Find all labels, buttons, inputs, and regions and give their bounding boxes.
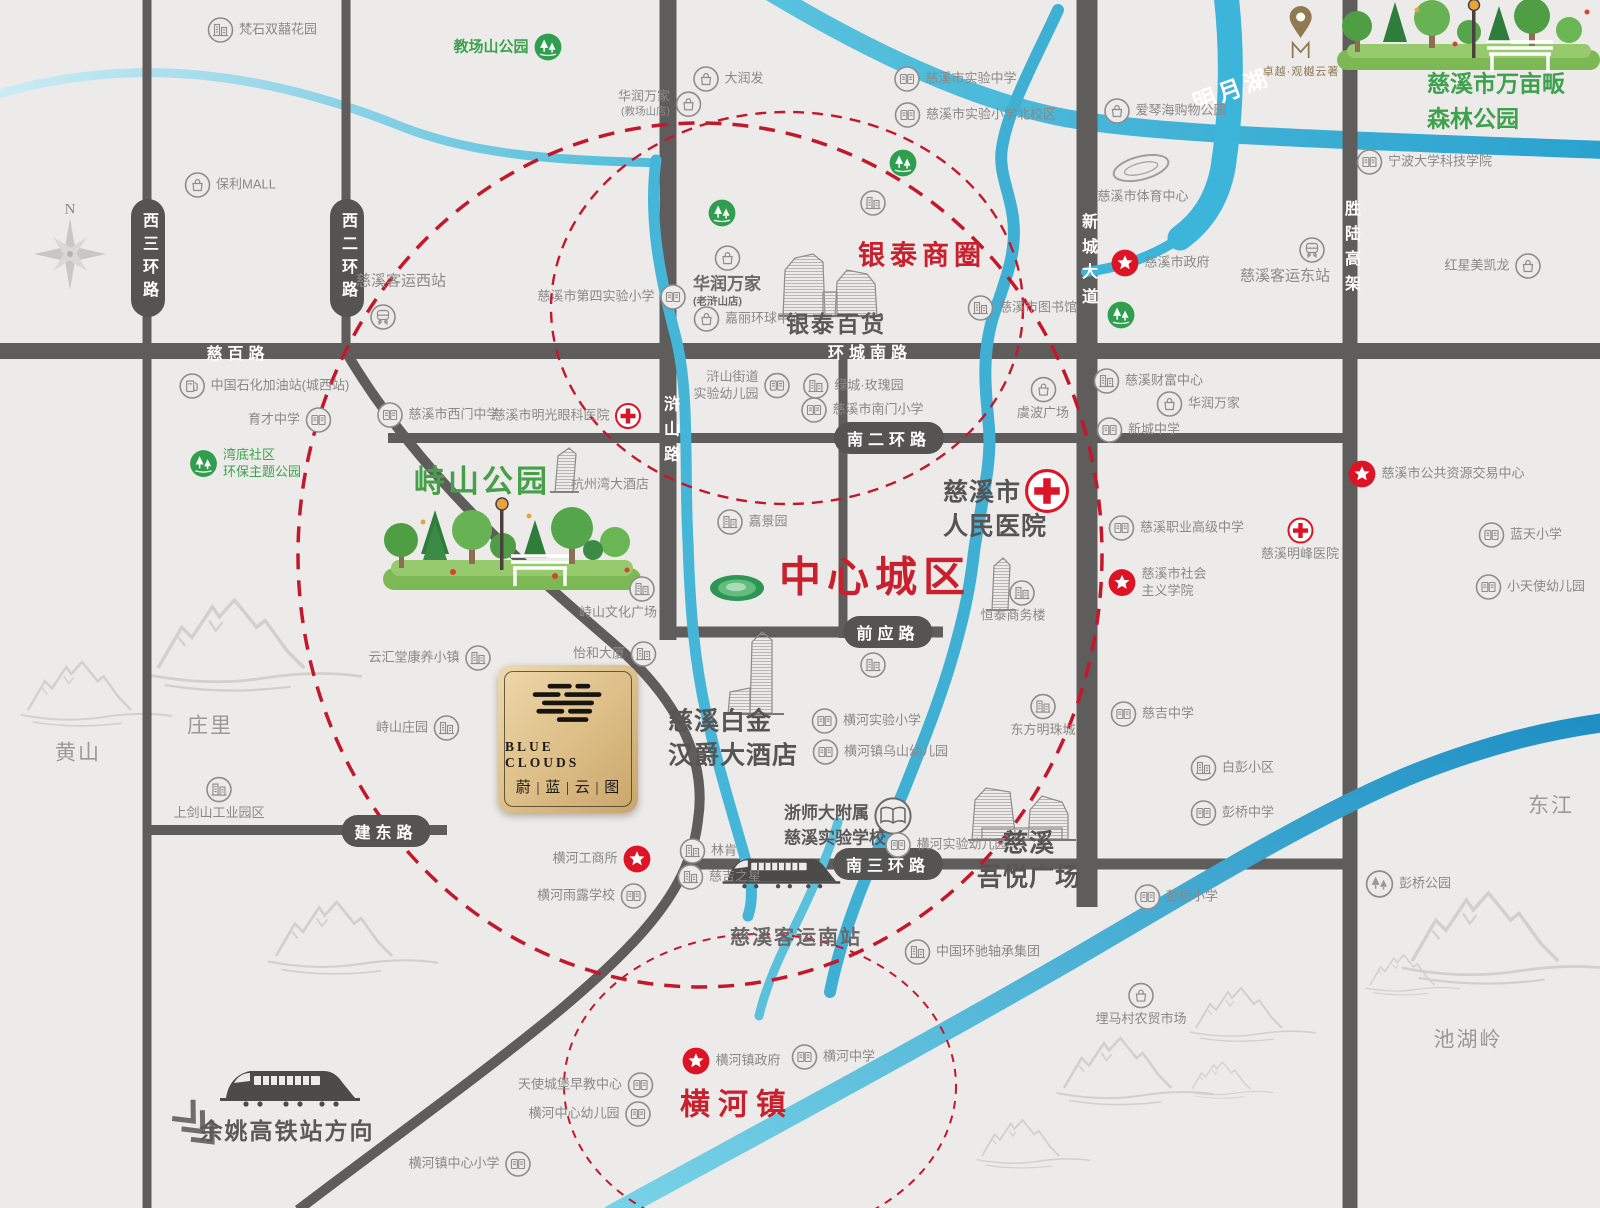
henghe-yulu-xuexiao: 横河雨露学校 xyxy=(537,883,647,910)
yuyao-gaotiezhan-fangxiang: 余姚高铁站方向 xyxy=(200,1117,375,1147)
building-icon xyxy=(1009,580,1036,607)
hongxing-meikailong: 红星美凯龙 xyxy=(1444,253,1541,280)
school-icon xyxy=(894,102,921,129)
train-icon xyxy=(1299,237,1326,264)
school-icon xyxy=(1356,149,1383,176)
henghe-zhongxue: 横河中学 xyxy=(791,1044,875,1071)
cross-lg-icon xyxy=(1024,468,1070,514)
location-map: BLUE CLOUDS 蔚 | 蓝 | 云 | 图 卓越·观樾云著 西三环路西二… xyxy=(0,0,1600,1208)
yintai-baihuo: 银泰百货 xyxy=(786,310,886,340)
cixi-keyun-dongzhan: 慈溪客运东站 xyxy=(1240,266,1330,286)
yihe-dasha: 怡和大厦 xyxy=(573,641,657,668)
school-icon xyxy=(1190,800,1217,827)
naner-huanlu-label: 南二环路 xyxy=(834,422,944,454)
xincheng-zhongxue: 新城中学 xyxy=(1096,417,1180,444)
hengtai-icon xyxy=(1009,580,1036,607)
school-icon xyxy=(1110,701,1137,728)
jiandong-lu-label: 建东路 xyxy=(341,815,430,847)
cixi-gonggong-ziyuan-jiaoyi-zhongxin: 慈溪市公共资源交易中心 xyxy=(1347,460,1524,489)
school-icon xyxy=(764,373,791,400)
school-icon xyxy=(505,1151,532,1178)
shenglu-gaojia-label: 胜陆高架 xyxy=(1338,200,1362,300)
school-icon xyxy=(811,708,838,735)
developer-project-name: 卓越·观樾云著 xyxy=(1263,63,1340,79)
cixi-shiyan-zhongxue: 慈溪市实验中学 xyxy=(893,66,1016,93)
developer-pin-block: 卓越·观樾云著 xyxy=(1263,6,1340,79)
dongzhan-train xyxy=(1299,237,1326,264)
dongjiang: 东江 xyxy=(1528,792,1574,819)
zhongguo-shihua-jiayouzhan: 中国石化加油站(城西站) xyxy=(179,373,350,400)
jiajingyuan: 嘉景园 xyxy=(716,509,787,536)
xincheng-dadao-label: 新城大道 xyxy=(1075,213,1099,313)
lvcheng-meiguiyuan: 绿城·玫瑰园 xyxy=(802,373,903,400)
baoli-mall: 保利MALL xyxy=(184,172,276,199)
cixi-keyun-nanzhan: 慈溪客运南站 xyxy=(730,925,862,951)
location-pin-icon xyxy=(1288,6,1314,40)
dongfang-mingzhucheng: 东方明珠城 xyxy=(1010,693,1075,739)
project-logo-inner: BLUE CLOUDS 蔚 | 蓝 | 云 | 图 xyxy=(504,671,632,807)
yucai-zhongxue: 育才中学 xyxy=(248,407,332,434)
bag-icon xyxy=(1156,391,1183,418)
project-logo-plaque: BLUE CLOUDS 蔚 | 蓝 | 云 | 图 xyxy=(498,665,638,813)
clouds-icon xyxy=(520,682,616,734)
henghezhen: 横河镇 xyxy=(680,1086,794,1125)
zheshida-fushu-cixi-shiyan-xuexiao: 浙师大附属慈溪实验学校 xyxy=(784,801,886,850)
school-icon xyxy=(620,883,647,910)
darunfa: 大润发 xyxy=(692,66,763,93)
bag-icon xyxy=(1127,982,1154,1009)
school-icon xyxy=(305,407,332,434)
huancheng-nanlu-label: 环城南路 xyxy=(828,339,912,363)
school-icon xyxy=(1134,884,1161,911)
park-icon xyxy=(534,33,563,62)
cixi-nanmen-xiaoxue: 慈溪市南门小学 xyxy=(800,397,923,424)
building-icon xyxy=(716,509,743,536)
cixi-zhengfu: 慈溪市政府 xyxy=(1110,249,1209,278)
school-icon xyxy=(1108,515,1135,542)
park-icon-2 xyxy=(708,199,737,228)
zhuangli: 庄里 xyxy=(187,712,233,739)
henghezhen-zhongxin-xiaoxue: 横河镇中心小学 xyxy=(408,1151,531,1178)
xiaotianshi-youeryuan: 小天使幼儿园 xyxy=(1475,574,1585,601)
star-icon xyxy=(681,1047,710,1076)
cross-icon xyxy=(615,403,642,430)
star-icon xyxy=(1107,569,1136,598)
ningbo-daxue-keji-xueyuan: 宁波大学科技学院 xyxy=(1356,149,1492,176)
cixi-zhiye-gaoji-zhongxue: 慈溪职业高级中学 xyxy=(1108,515,1244,542)
building-icon xyxy=(860,190,887,217)
cixi-baijin-hanjue-dajiudian: 慈溪白金汉爵大酒店 xyxy=(668,705,798,773)
cixi-mingfeng-yiyuan: 慈溪明峰医院 xyxy=(1261,517,1339,563)
building-icon xyxy=(802,373,829,400)
school-icon xyxy=(893,66,920,93)
huarun-wanjia: 华润万家 xyxy=(1156,391,1240,418)
star-icon xyxy=(623,845,652,874)
ciji-zhixing: 慈吉之星 xyxy=(677,864,761,891)
shangjianshan-gongye-yuanqu: 上剑山工业园区 xyxy=(173,776,264,822)
building-icon xyxy=(677,864,704,891)
fanshi-shuangxi-huayuan: 梵石双囍花园 xyxy=(207,17,317,44)
project-name-en: BLUE CLOUDS xyxy=(505,739,631,771)
train-icon xyxy=(370,304,397,331)
star-icon xyxy=(1347,460,1376,489)
bag-icon xyxy=(675,91,702,118)
cixi-wuyue-guangchang: 慈溪吾悦广场 xyxy=(977,827,1081,895)
hangzhouwan-dajiudian: 杭州湾大酒店 xyxy=(571,477,649,494)
bag-icon xyxy=(1515,253,1542,280)
zhishan-wenhua-guangchang-icon xyxy=(629,576,656,603)
henghezhen-zhengfu: 横河镇政府 xyxy=(681,1047,780,1076)
cixi-keyun-xizhan: 慈溪客运西站 xyxy=(356,271,446,291)
henghe-gongshangsuo: 横河工商所 xyxy=(552,845,651,874)
huangshan: 黄山 xyxy=(55,739,101,766)
cixi-ximen-zhongxue: 慈溪市西门中学 xyxy=(376,402,499,429)
huarun-wanjia-laohushan: 华润万家(老浒山店) xyxy=(693,245,761,310)
project-name-zh: 蔚 | 蓝 | 云 | 图 xyxy=(516,776,621,797)
school-icon xyxy=(660,284,687,311)
building-icon-1 xyxy=(860,190,887,217)
building-icon xyxy=(433,715,460,742)
school-icon xyxy=(812,739,839,766)
building-icon xyxy=(630,641,657,668)
xier-huanlu-label: 西二环路 xyxy=(330,199,364,317)
huarun-wanjia-jiaochangshan: 华润万家(教场山店) xyxy=(618,89,702,120)
building-icon xyxy=(967,295,994,322)
building-icon xyxy=(629,576,656,603)
cixi-tiyu-zhongxin: 慈溪市体育中心 xyxy=(1097,189,1188,206)
school-icon xyxy=(791,1044,818,1071)
school-icon xyxy=(376,402,403,429)
school-icon xyxy=(1475,574,1502,601)
school-icon xyxy=(884,832,911,859)
cixi-wanmupan-senlin-gongyuan: 慈溪市万亩畈森林公园 xyxy=(1427,67,1565,136)
building-icon xyxy=(860,652,887,679)
jiaochangshan-gongyuan: 教场山公园 xyxy=(453,33,562,62)
star-icon xyxy=(1110,249,1139,278)
pengqiao-zhongxue: 彭桥中学 xyxy=(1190,800,1274,827)
school-icon xyxy=(627,1072,654,1099)
ciji-zhongxue: 慈吉中学 xyxy=(1110,701,1194,728)
cixi-shehuizhuyi-xueyuan: 慈溪市社会主义学院 xyxy=(1107,566,1206,600)
building-icon xyxy=(207,17,234,44)
zhishan-gongyuan: 峙山公园 xyxy=(414,462,550,502)
henghezhen-wushan-youeryuan: 横河镇乌山幼儿园 xyxy=(812,739,948,766)
zhongguo-huanchi-zhoucheng-jituan: 中国环驰轴承集团 xyxy=(904,939,1040,966)
hushan-lu-label: 浒山路 xyxy=(657,396,681,471)
qianying-lu-label: 前应路 xyxy=(843,616,932,648)
school-icon xyxy=(800,397,827,424)
bag-icon xyxy=(1103,98,1130,125)
zhongxin-chengqu: 中心城区 xyxy=(779,551,971,606)
zhishan-wenhua-guangchang: 峙山文化广场 xyxy=(579,605,657,622)
aiqinhai-gouwu-gongyuan: 爱琴海购物公园 xyxy=(1103,98,1226,125)
cixi-disi-shiyan-xiaoxue: 慈溪市第四实验小学 xyxy=(537,284,686,311)
building-icon xyxy=(465,645,492,672)
building-icon xyxy=(1190,755,1217,782)
park-icon xyxy=(1107,301,1136,330)
park-icon-1 xyxy=(889,149,918,178)
bag-icon xyxy=(714,245,741,272)
yintai-shangquan: 银泰商圈 xyxy=(858,238,986,273)
pengqiao-gongyuan: 彭桥公园 xyxy=(1365,870,1451,899)
park-icon-3 xyxy=(1107,301,1136,330)
hengtai-shangwulou: 恒泰商务楼 xyxy=(980,608,1045,625)
cixi-mingguang-yanke-yiyuan: 慈溪市明光眼科医院 xyxy=(492,403,641,430)
cibai-lu-label: 慈百路 xyxy=(206,340,269,364)
lantian-xiaoxue: 蓝天小学 xyxy=(1478,522,1562,549)
school-icon xyxy=(1478,522,1505,549)
building-icon xyxy=(904,939,931,966)
wandi-shequ-huanbao-gongyuan: 湾底社区环保主题公园 xyxy=(189,447,301,481)
tianshi-chengbao-zaojiao-zhongxin: 天使城堡早教中心 xyxy=(518,1072,654,1099)
park-icon xyxy=(889,149,918,178)
bag-icon xyxy=(184,172,211,199)
building-icon xyxy=(679,838,706,865)
pengqiao-xiaoxue: 彭桥小学 xyxy=(1134,884,1218,911)
maima-cun-nongmao-shichang: 埋马村农贸市场 xyxy=(1095,982,1186,1028)
park-icon xyxy=(189,450,218,479)
book-icon xyxy=(874,797,912,835)
cross-icon xyxy=(1286,517,1313,544)
henghe-zhongxin-youeryuan: 横河中心幼儿园 xyxy=(528,1101,651,1128)
school-icon xyxy=(1096,417,1123,444)
gas-icon xyxy=(179,373,206,400)
chihuling: 池湖岭 xyxy=(1434,1026,1503,1053)
zheshida-book xyxy=(874,797,912,835)
baipeng-xiaoqu: 白彭小区 xyxy=(1190,755,1274,782)
xizhan-train xyxy=(370,304,397,331)
renmin-yiyuan-cross xyxy=(1024,468,1070,514)
cixi-tushuguan: 慈溪市图书馆 xyxy=(967,295,1077,322)
hushan-jiedao-shiyan-youeryuan: 浒山街道实验幼儿园 xyxy=(693,369,790,403)
trees-icon xyxy=(1365,870,1394,899)
cixi-shiyan-xiaoxue-beixiaoqu: 慈溪市实验小学北校区 xyxy=(894,102,1056,129)
building-icon xyxy=(1029,693,1056,720)
building-icon xyxy=(1093,368,1120,395)
school-icon xyxy=(625,1101,652,1128)
building-icon xyxy=(205,776,232,803)
bag-icon xyxy=(1029,376,1056,403)
bag-icon xyxy=(693,306,720,333)
yubo-guangchang: 虞波广场 xyxy=(1017,376,1069,422)
compass-label: N xyxy=(65,200,76,220)
m-logo-icon xyxy=(1288,40,1314,60)
xisan-huanlu-label: 西三环路 xyxy=(131,199,165,317)
henghe-shiyan-xiaoxue: 横河实验小学 xyxy=(811,708,921,735)
park-icon xyxy=(708,199,737,228)
linken: 林肯 xyxy=(679,838,737,865)
building-icon-2 xyxy=(860,652,887,679)
green-pond xyxy=(710,575,764,601)
zhishan-zhuangyuan: 峙山庄园 xyxy=(376,715,460,742)
yunhuitang-kangyang-xiaozhen: 云汇堂康养小镇 xyxy=(368,645,491,672)
